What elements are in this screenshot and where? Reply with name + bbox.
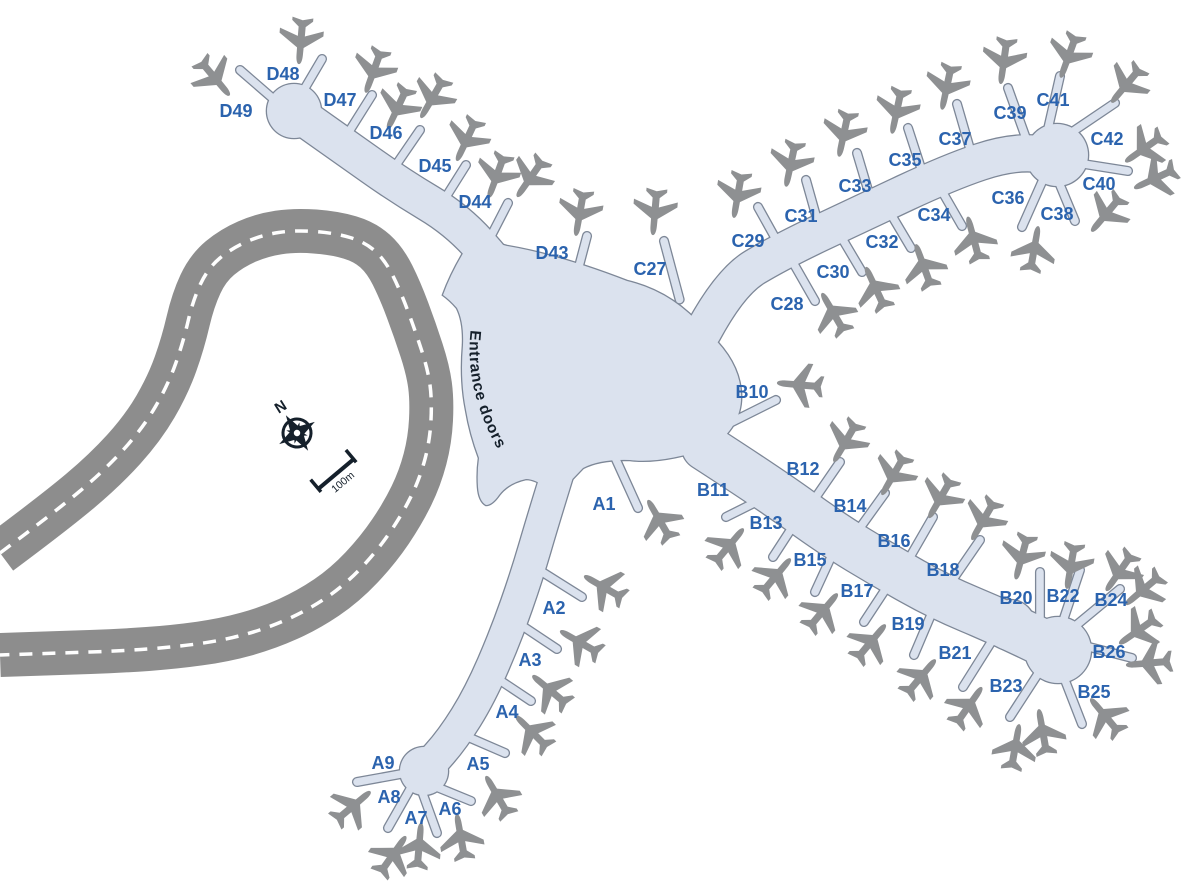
gate-label-C28: C28 [770,294,803,314]
gate-label-C31: C31 [784,206,817,226]
compass-rose-icon: N [259,389,326,462]
gate-label-D45: D45 [418,156,451,176]
airplane-icon-C32 [895,237,952,296]
airplane-icon-A3 [549,612,611,673]
airport-terminal-map: D49D48D47D46D45D44D43C27C29C31C33C35C37C… [0,0,1200,883]
gate-label-A3: A3 [518,650,541,670]
gate-label-B17: B17 [840,581,873,601]
gate-label-B13: B13 [749,513,782,533]
gate-label-D48: D48 [266,64,299,84]
airplane-icon [467,765,528,827]
gate-label-A1: A1 [592,494,615,514]
gate-label-A6: A6 [438,799,461,819]
airplane-icon-A2 [573,557,635,618]
airplane-icon-B14 [863,443,924,505]
gate-label-C42: C42 [1090,129,1123,149]
gate-label-C33: C33 [838,176,871,196]
gate-label-B23: B23 [989,676,1022,696]
gate-label-B12: B12 [786,459,819,479]
airplane-icon-B23 [989,720,1040,774]
gate-label-B18: B18 [926,560,959,580]
gate-label-D47: D47 [323,90,356,110]
gate-label-C41: C41 [1036,90,1069,110]
gate-label-B19: B19 [891,614,924,634]
gate-label-C38: C38 [1040,204,1073,224]
gate-label-B20: B20 [999,588,1032,608]
airplane-icon-B12 [815,410,876,472]
airplane-icon-C37 [920,59,973,114]
gate-label-D49: D49 [219,101,252,121]
gate-label-B24: B24 [1094,590,1127,610]
gate-label-D46: D46 [369,123,402,143]
bulb-a [400,747,448,795]
airplane-icon-C27 [631,187,679,237]
gate-label-B16: B16 [877,531,910,551]
airplane-icon [402,66,463,128]
airplane-icon-C33 [817,106,870,161]
terminal-map-canvas: D49D48D47D46D45D44D43C27C29C31C33C35C37C… [0,0,1200,883]
scale-bar: 100m [311,450,365,502]
airplane-icon-C35 [870,83,923,138]
gate-label-A9: A9 [371,753,394,773]
airplane-icon-B10 [775,361,825,409]
airplane-icon-C29 [712,168,763,222]
gate-label-C34: C34 [917,205,950,225]
gate-label-C27: C27 [633,259,666,279]
gate-label-A2: A2 [542,598,565,618]
gate-label-B11: B11 [697,480,729,500]
gate-label-C36: C36 [991,188,1024,208]
gate-label-A7: A7 [404,808,427,828]
gate-label-B14: B14 [833,496,866,516]
scale-bar-label: 100m [329,469,357,495]
gate-label-B25: B25 [1077,682,1110,702]
gate-label-B10: B10 [735,382,768,402]
gate-label-C35: C35 [888,150,921,170]
gate-label-D44: D44 [458,192,491,212]
gate-label-C39: C39 [993,103,1026,123]
gate-label-C40: C40 [1082,174,1115,194]
airplane-icon-D43 [554,186,605,240]
airplane-icon-C41 [1040,26,1097,85]
airplane-icon [361,824,424,883]
gate-label-C30: C30 [816,262,849,282]
gate-label-C32: C32 [865,232,898,252]
access-road [0,231,431,655]
gate-label-B21: B21 [938,643,971,663]
terminal-light-layer [240,59,1132,833]
airplane-icon-C39 [979,35,1029,87]
gate-label-B26: B26 [1092,642,1125,662]
bulb-d [267,84,321,138]
airplane-icon-C36 [1008,222,1059,276]
gate-label-C37: C37 [938,129,971,149]
gate-label-B22: B22 [1046,586,1079,606]
compass-north-label: N [272,397,290,417]
gate-label-A8: A8 [377,787,400,807]
gate-label-B15: B15 [793,550,826,570]
airplane-icon [1124,639,1174,687]
gate-label-A4: A4 [495,702,518,722]
gate-label-C29: C29 [731,231,764,251]
gate-label-D43: D43 [535,243,568,263]
gate-label-A5: A5 [466,754,489,774]
bulb-c [1026,124,1088,186]
airplane-icon-B16 [910,466,971,528]
